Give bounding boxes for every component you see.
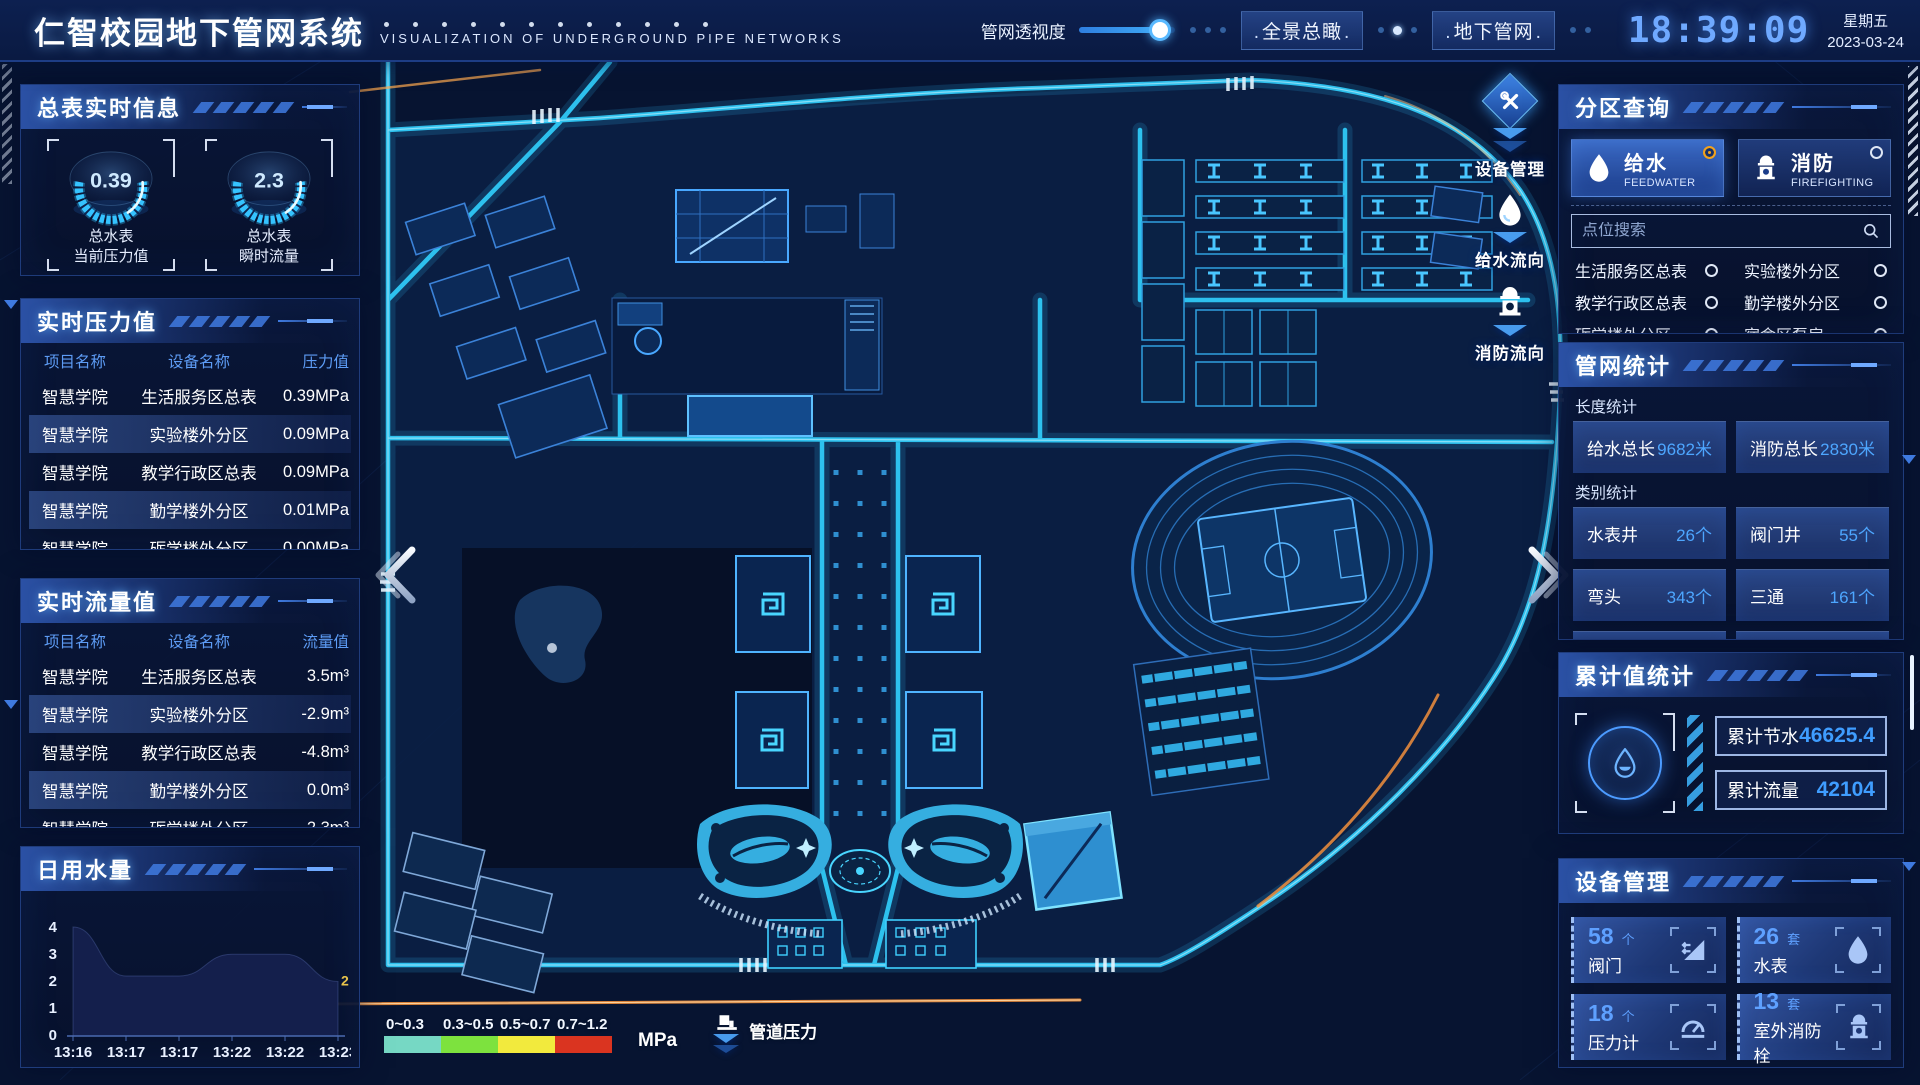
- list-item[interactable]: 实验楼外分区: [1744, 254, 1887, 286]
- stat-box-clipped: [1573, 631, 1726, 640]
- tool-device-management[interactable]: 设备管理: [1475, 74, 1545, 180]
- panel-header: 实时压力值: [21, 299, 359, 343]
- dashed-divider: [1571, 205, 1891, 206]
- panel-device-management: 设备管理 58个 阀门 26套 水表: [1558, 858, 1904, 1068]
- panel-pipe-stats: 管网统计 长度统计 给水总长 9682米 消防总长 2830米 类别统计 水表井…: [1558, 342, 1904, 640]
- legend-swatch: [555, 1036, 612, 1053]
- table-row: 智慧学院生活服务区总表0.39MPa: [29, 377, 351, 415]
- svg-text:13:22: 13:22: [213, 1044, 251, 1061]
- panel-header: 管网统计: [1559, 343, 1903, 387]
- panorama-button[interactable]: 全景总瞰: [1241, 11, 1364, 50]
- table-row: 智慧学院砺学楼外分区2.3m³: [29, 809, 351, 828]
- panel-title: 实时流量值: [37, 585, 157, 617]
- edge-stripe-decoration: [2, 64, 12, 184]
- table-header-row: 项目名称设备名称压力值: [29, 345, 351, 377]
- hydrant-icon: [1844, 1012, 1874, 1042]
- radio-selected[interactable]: [1703, 146, 1716, 159]
- device-card-valve[interactable]: 58个 阀门: [1571, 917, 1726, 983]
- table-row: 智慧学院实验楼外分区-2.9m³: [29, 695, 351, 733]
- pressure-legend: 0~0.3 0.3~0.5 0.5~0.7 0.7~1.2 MPa 管道压力: [384, 1012, 817, 1053]
- panel-daily-water: 日用水量 4 3 2 1 0 13:16 13:17 13:17 13:22 1…: [20, 846, 360, 1068]
- x-axis-ticks: 13:16 13:17 13:17 13:22 13:22 13:23: [54, 1044, 351, 1061]
- chevron-down-icon: [1493, 128, 1527, 139]
- tab-feedwater[interactable]: 给水 FEEDWATER: [1571, 139, 1724, 197]
- map-pan-left-arrow[interactable]: [372, 544, 418, 611]
- panel-header: 分区查询: [1559, 85, 1903, 129]
- tab-sublabel: FEEDWATER: [1624, 177, 1695, 189]
- panel-header: 设备管理: [1559, 859, 1903, 903]
- legend-swatch: [384, 1036, 441, 1053]
- stat-box: 弯头 343个: [1573, 569, 1726, 621]
- panel-meter-info: 总表实时信息 0.39 总水表 当前压力值: [20, 84, 360, 276]
- cumulative-saving-row: 累计节水 46625.4: [1715, 716, 1887, 756]
- header-line: [1816, 674, 1891, 676]
- radio-unselected[interactable]: [1874, 264, 1887, 277]
- svg-text:1: 1: [49, 1000, 57, 1017]
- pressure-table: 项目名称设备名称压力值 智慧学院生活服务区总表0.39MPa 智慧学院实验楼外分…: [21, 343, 359, 550]
- panel-cumulative: 累计值统计 累计节水 46625.4 累计流量 42104: [1558, 652, 1904, 834]
- legend-range: 0.7~1.2: [555, 1016, 612, 1053]
- chevron-down-icon: [1493, 141, 1527, 152]
- daily-water-chart: 4 3 2 1 0 13:16 13:17 13:17 13:22 13:22 …: [21, 891, 359, 1068]
- slash-decoration-icon: [1687, 360, 1780, 371]
- radio-unselected[interactable]: [1705, 296, 1718, 309]
- panel-title: 日用水量: [37, 853, 133, 885]
- radio-unselected[interactable]: [1705, 328, 1718, 335]
- tools-icon: [1497, 88, 1523, 114]
- slash-decoration-icon: [1687, 102, 1780, 113]
- stat-box: 水表井 26个: [1573, 507, 1726, 559]
- auditorium: [676, 190, 788, 262]
- flow-gauge: 2.3 总水表 瞬时流量: [205, 139, 333, 271]
- stat-box-clipped: [1736, 631, 1889, 640]
- gauge-label: 总水表: [239, 227, 299, 247]
- panel-title: 总表实时信息: [37, 91, 181, 123]
- hydrant-icon: [1751, 153, 1781, 183]
- hydrant-icon: [1492, 284, 1528, 320]
- radio-unselected[interactable]: [1705, 264, 1718, 277]
- legend-range: 0.3~0.5: [441, 1016, 498, 1053]
- gauge-value: 0.39: [90, 169, 132, 193]
- table-row: 智慧学院勤学楼外分区0.01MPa: [29, 491, 351, 529]
- header-line: [302, 106, 347, 108]
- water-meter-icon: [1843, 935, 1873, 965]
- slash-decoration-icon: [173, 596, 266, 607]
- panel-title: 管网统计: [1575, 349, 1671, 381]
- legend-range: 0~0.3: [384, 1016, 441, 1053]
- list-item[interactable]: 勤学楼外分区: [1744, 286, 1887, 318]
- svg-text:13:17: 13:17: [107, 1044, 145, 1061]
- zone-point-list: 生活服务区总表 实验楼外分区 教学行政区总表 勤学楼外分区 砺学楼外分区 宿舍区…: [1559, 248, 1903, 334]
- chevron-down-icon: [1493, 325, 1527, 336]
- gauge-dial-icon: 0.39: [53, 141, 169, 227]
- panel-header: 累计值统计: [1559, 653, 1903, 697]
- svg-text:13:16: 13:16: [54, 1044, 92, 1061]
- water-saving-badge: [1575, 713, 1675, 813]
- dot-separator: [1570, 27, 1591, 33]
- device-card-hydrant[interactable]: 13套 室外消防栓: [1737, 994, 1892, 1060]
- valve-icon: [1678, 935, 1708, 965]
- table-header-row: 项目名称设备名称流量值: [29, 625, 351, 657]
- gauge-dial-icon: 2.3: [211, 141, 327, 227]
- svg-text:13:23: 13:23: [319, 1044, 351, 1061]
- slash-decoration-icon: [197, 102, 290, 113]
- clock-weekday: 星期五: [1843, 10, 1888, 31]
- legend-swatch: [498, 1036, 555, 1053]
- svg-text:0: 0: [49, 1027, 57, 1044]
- cumulative-flow-row: 累计流量 42104: [1715, 770, 1887, 810]
- legend-label: 管道压力: [749, 1018, 817, 1043]
- category-stats-label: 类别统计: [1575, 481, 1887, 501]
- pipe-pressure-marker: [713, 1012, 739, 1053]
- slash-decoration-icon: [173, 316, 266, 327]
- gauge-label: 当前压力值: [73, 247, 148, 267]
- slash-decoration-icon: [1687, 876, 1780, 887]
- svg-text:13:22: 13:22: [266, 1044, 304, 1061]
- panel-realtime-pressure: 实时压力值 项目名称设备名称压力值 智慧学院生活服务区总表0.39MPa 智慧学…: [20, 298, 360, 550]
- tab-label: 给水: [1624, 147, 1695, 176]
- app-subtitle: VISUALIZATION OF UNDERGROUND PIPE NETWOR…: [380, 31, 844, 46]
- clock-date: 2023-03-24: [1827, 34, 1904, 51]
- header-line: [278, 320, 347, 322]
- table-row: 智慧学院砺学楼外分区0.00MPa: [29, 529, 351, 550]
- table-row: 智慧学院教学行政区总表0.09MPa: [29, 453, 351, 491]
- stat-box: 给水总长 9682米: [1573, 421, 1726, 473]
- stat-box: 阀门井 55个: [1736, 507, 1889, 559]
- panel-title: 分区查询: [1575, 91, 1671, 123]
- transparency-slider-label: 管网透视度: [981, 18, 1066, 43]
- svg-text:3: 3: [49, 946, 57, 963]
- water-drop-icon: [1584, 153, 1614, 183]
- panel-zone-query: 分区查询 给水 FEEDWATER 消防 FIREFIGHTING: [1558, 84, 1904, 334]
- chevron-down-icon: [1493, 232, 1527, 243]
- clock-time: 18:39:09: [1628, 10, 1809, 51]
- pressure-meter-icon: [713, 1012, 739, 1034]
- series-end-label: 2: [341, 973, 349, 989]
- pressure-gauge: 0.39 总水表 当前压力值: [47, 139, 175, 271]
- list-item[interactable]: 生活服务区总表: [1575, 254, 1718, 286]
- radio-unselected[interactable]: [1874, 328, 1887, 335]
- list-item[interactable]: 砺学楼外分区: [1575, 318, 1718, 334]
- header-line: [1792, 364, 1891, 366]
- panel-title: 累计值统计: [1575, 659, 1695, 691]
- panel-header: 总表实时信息: [21, 85, 359, 129]
- underground-pipes-button[interactable]: 地下管网: [1432, 11, 1555, 50]
- chevron-down-icon: [713, 1045, 739, 1053]
- panel-header: 实时流量值: [21, 579, 359, 623]
- header-line: [278, 600, 347, 602]
- svg-text:2: 2: [49, 973, 57, 990]
- gauge-label: 总水表: [73, 227, 148, 247]
- tool-feedwater-flow[interactable]: 给水流向: [1475, 188, 1545, 271]
- table-row: 智慧学院教学行政区总表-4.8m³: [29, 733, 351, 771]
- panel-header: 日用水量: [21, 847, 359, 891]
- svg-text:13:17: 13:17: [160, 1044, 198, 1061]
- map-tool-stack: 设备管理 给水流向 消防流向: [1462, 74, 1558, 372]
- tab-firefighting[interactable]: 消防 FIREFIGHTING: [1738, 139, 1891, 197]
- dot-separator: [1190, 27, 1226, 33]
- device-card-water-meter[interactable]: 26套 水表: [1737, 917, 1892, 983]
- solar-array: [1134, 648, 1269, 795]
- flow-table: 项目名称设备名称流量值 智慧学院生活服务区总表3.5m³ 智慧学院实验楼外分区-…: [21, 623, 359, 828]
- gauge-label: 瞬时流量: [239, 247, 299, 267]
- side-arrow-icon: [1902, 455, 1916, 464]
- header-line: [1792, 880, 1891, 882]
- panel-realtime-flow: 实时流量值 项目名称设备名称流量值 智慧学院生活服务区总表3.5m³ 智慧学院实…: [20, 578, 360, 828]
- side-arrow-icon: [4, 700, 18, 709]
- transparency-slider-fill: [1079, 27, 1161, 33]
- slash-decoration-icon: [1711, 670, 1804, 681]
- side-arrow-icon: [1902, 862, 1916, 871]
- tab-label: 消防: [1791, 147, 1873, 176]
- pressure-gauge-icon: [1678, 1012, 1708, 1042]
- header-line: [1792, 106, 1891, 108]
- legend-unit: MPa: [638, 1030, 677, 1052]
- tab-sublabel: FIREFIGHTING: [1791, 177, 1873, 189]
- tool-firefighting-flow[interactable]: 消防流向: [1475, 279, 1545, 364]
- gymnasium: [1024, 812, 1121, 909]
- app-title: 仁智校园地下管网系统: [34, 8, 364, 53]
- header-line: [254, 868, 347, 870]
- transparency-slider-handle[interactable]: [1149, 19, 1171, 41]
- hazard-stripe-divider: [1687, 715, 1703, 811]
- table-row: 智慧学院实验楼外分区0.09MPa: [29, 415, 351, 453]
- transparency-slider[interactable]: [1079, 19, 1175, 41]
- list-item[interactable]: 宿舍区泵房: [1744, 318, 1887, 334]
- y-axis-ticks: 4 3 2 1 0: [49, 919, 58, 1044]
- table-row: 智慧学院生活服务区总表3.5m³: [29, 657, 351, 695]
- side-arrow-icon: [4, 300, 18, 309]
- gauge-value: 2.3: [254, 169, 284, 193]
- table-row: 智慧学院勤学楼外分区0.0m³: [29, 771, 351, 809]
- slash-decoration-icon: [149, 864, 242, 875]
- radio-unselected[interactable]: [1874, 296, 1887, 309]
- panel-title: 设备管理: [1575, 865, 1671, 897]
- stat-box: 三通 161个: [1736, 569, 1889, 621]
- radio-unselected[interactable]: [1870, 146, 1883, 159]
- search-box[interactable]: [1571, 214, 1891, 248]
- edge-stripe-decoration: [1908, 66, 1918, 216]
- edge-bar-decoration: [1910, 655, 1914, 730]
- legend-range: 0.5~0.7: [498, 1016, 555, 1053]
- panel-title: 实时压力值: [37, 305, 157, 337]
- device-card-pressure-gauge[interactable]: 18个 压力计: [1571, 994, 1726, 1060]
- title-dots: [380, 22, 844, 27]
- dot-separator: [1378, 26, 1417, 35]
- list-item[interactable]: 教学行政区总表: [1575, 286, 1718, 318]
- water-drop-icon: [1610, 748, 1640, 778]
- svg-text:4: 4: [49, 919, 58, 936]
- length-stats-label: 长度统计: [1575, 395, 1887, 415]
- clock: 18:39:09 星期五 2023-03-24: [1628, 10, 1904, 51]
- stat-box: 消防总长 2830米: [1736, 421, 1889, 473]
- top-header: 仁智校园地下管网系统 VISUALIZATION OF UNDERGROUND …: [0, 0, 1920, 62]
- legend-swatch: [441, 1036, 498, 1053]
- chevron-down-icon: [713, 1034, 739, 1043]
- search-input[interactable]: [1582, 222, 1862, 240]
- water-drop-icon: [1493, 193, 1527, 227]
- search-icon: [1862, 222, 1880, 240]
